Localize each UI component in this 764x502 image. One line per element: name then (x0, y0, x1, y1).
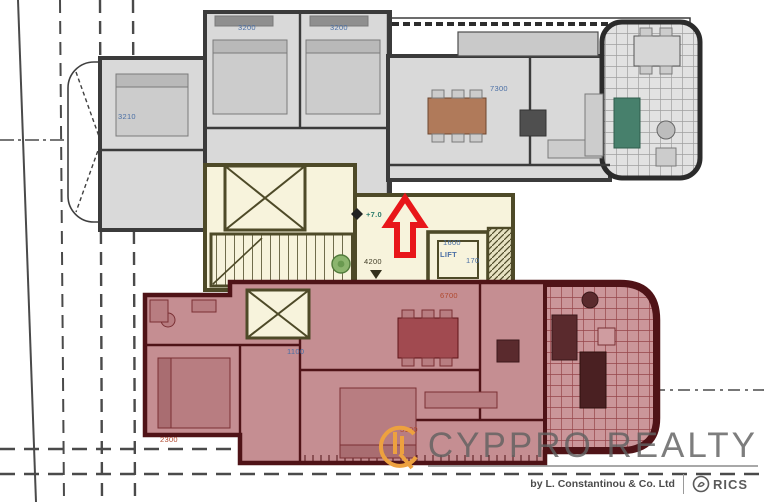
floor-plan-drawing: 3210 3200 3200 7300 +7.0 4200 (0, 0, 764, 502)
dining-table (398, 310, 458, 366)
dim-label: 3200 (238, 23, 256, 32)
dim-label: 170 (466, 256, 479, 265)
terrace-planter (582, 292, 598, 308)
terrace-sofa (552, 315, 577, 360)
level-label: +7.0 (366, 210, 382, 219)
staircase (211, 234, 353, 286)
lift-label: LIFT (440, 250, 457, 259)
kitchen-unit (580, 352, 606, 408)
plot-line-solid (18, 0, 36, 502)
planter (657, 121, 675, 139)
fireplace-column (520, 110, 546, 136)
plant-icon (332, 255, 350, 273)
bed-icon (116, 74, 188, 136)
dim-label: 1100 (287, 347, 304, 356)
plot-line-dashed-1 (60, 0, 64, 502)
bed-icon (306, 40, 380, 114)
dim-label: 3210 (118, 112, 136, 121)
terrace-chair (656, 148, 676, 166)
void-shaft (225, 166, 305, 230)
bed-icon (213, 40, 287, 114)
dim-label: 3100 (400, 425, 418, 434)
coffee-table (497, 340, 519, 362)
kitchen-counter (458, 32, 598, 56)
void-shaft-lower (247, 290, 309, 338)
dim-label: 7300 (490, 84, 508, 93)
dining-table (428, 90, 486, 142)
dim-label: 1600 (443, 238, 461, 247)
lower-floor-apartment: 1100 6700 2300 3100 (145, 282, 658, 463)
dim-label: 2300 (160, 435, 178, 444)
dim-label: 4200 (364, 257, 382, 266)
sun-lounger (614, 98, 640, 148)
bed-icon (340, 388, 416, 458)
service-shaft (488, 228, 512, 288)
dim-label: 6700 (440, 291, 458, 300)
dim-label: 3200 (330, 23, 348, 32)
sofa-icon (425, 392, 497, 408)
bed-icon (158, 358, 230, 428)
terrace-table (598, 328, 615, 345)
sink (192, 300, 216, 312)
shower (150, 300, 168, 322)
